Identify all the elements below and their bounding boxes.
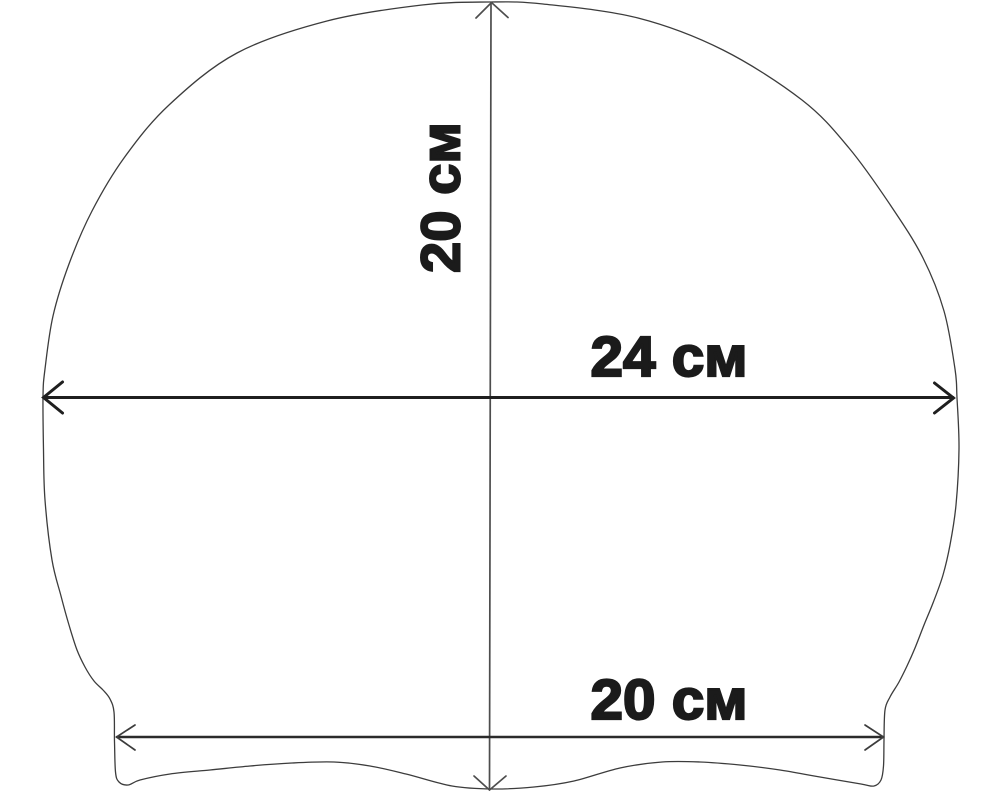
svg-text:24 см: 24 см bbox=[591, 325, 748, 389]
svg-text:20 см: 20 см bbox=[410, 122, 472, 273]
svg-text:20 см: 20 см bbox=[591, 668, 748, 732]
